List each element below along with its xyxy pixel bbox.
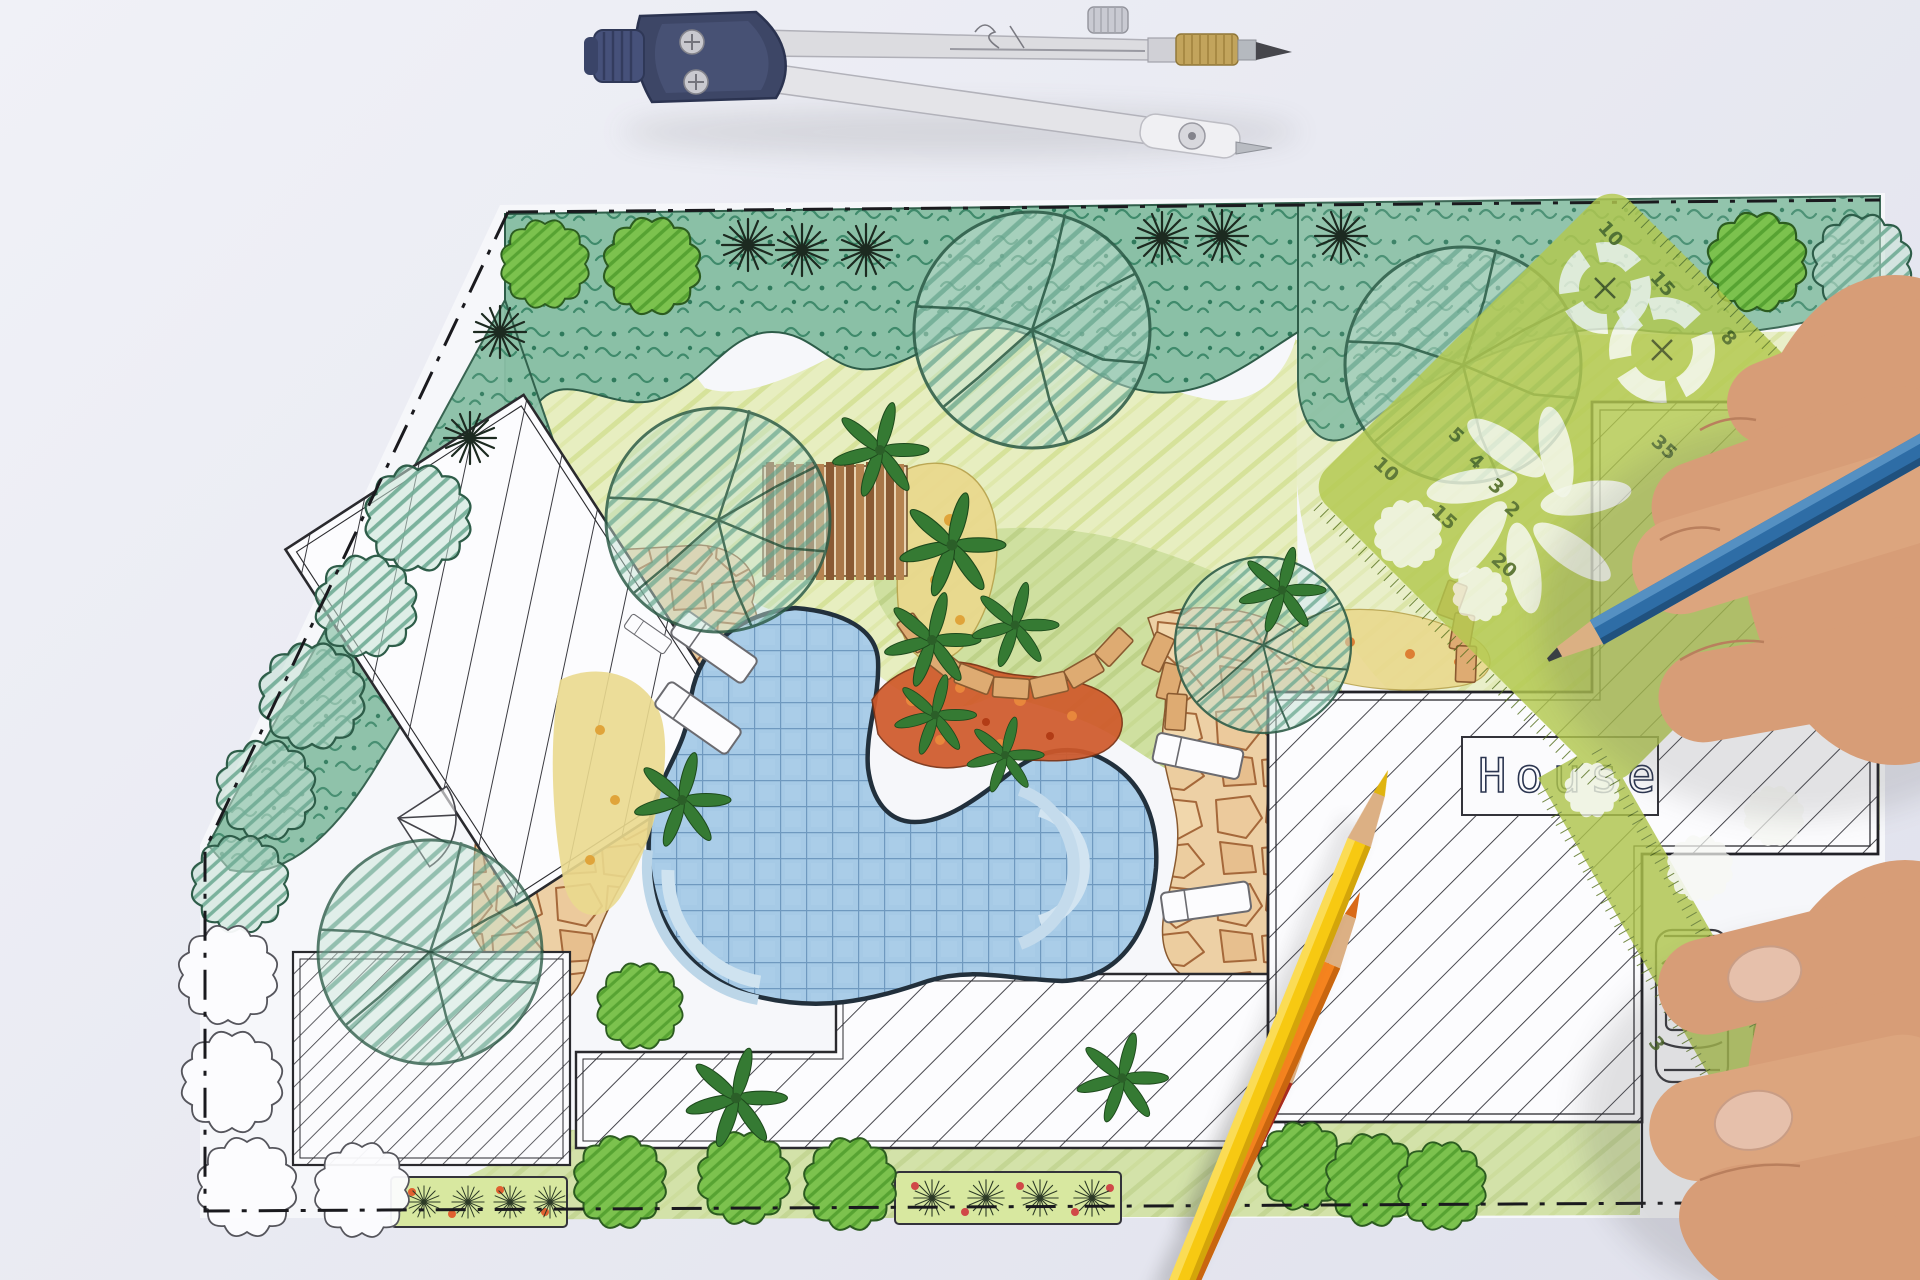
photo-landscape-plan-scene: House 10 15 8 35 30 10 15 20: [0, 0, 1920, 1280]
compass-upper-leg: [762, 30, 1152, 60]
joint-screw-center: [1188, 132, 1196, 140]
flower-box-2: [895, 1172, 1121, 1224]
adjust-knob: [1088, 7, 1128, 33]
clutch-collar: [1148, 38, 1176, 62]
brass-lead-holder: [1176, 34, 1292, 65]
grip-endcap: [584, 37, 598, 75]
compass-handle: [584, 12, 786, 102]
compass-lead: [1256, 42, 1292, 60]
scene-canvas: House 10 15 8 35 30 10 15 20: [0, 0, 1920, 1280]
flower-box: [391, 1177, 567, 1227]
compass-grip: [594, 30, 644, 82]
